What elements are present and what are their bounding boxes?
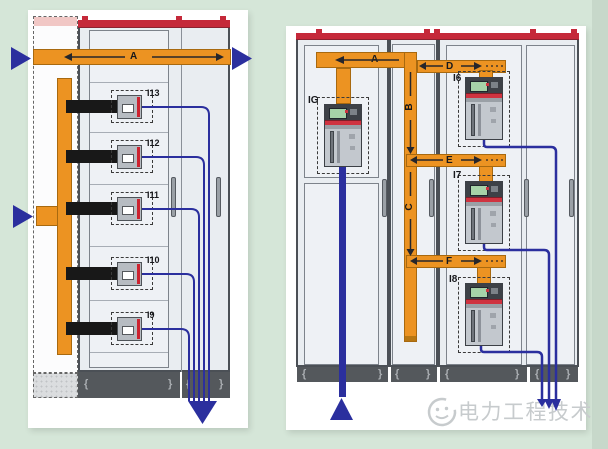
plinth-mark: } (426, 369, 430, 380)
plinth-segment (297, 367, 388, 382)
cabinet-top-strip (438, 33, 579, 40)
acb-feeder-i8 (465, 283, 503, 346)
incoming-stub-left (36, 206, 58, 226)
plinth-segment (78, 372, 180, 398)
compartment-line (90, 132, 168, 133)
switchgear-busbar-diagram: A I13 I12 I11 I10 I9 { } { } (0, 0, 608, 449)
breaker-indicator (486, 83, 489, 86)
left-cabinet-divider (181, 28, 182, 372)
acb-feeder-i7 (465, 181, 503, 244)
watermark-logo (424, 394, 460, 430)
breaker-part (349, 134, 355, 139)
breaker-button (491, 186, 498, 192)
watermark-text: 电力工程技术 (458, 401, 593, 425)
breaker-rail (471, 104, 475, 136)
breaker-part (490, 107, 496, 112)
breaker-handle (122, 271, 134, 280)
breaker-part (350, 146, 355, 150)
breaker-button (491, 82, 498, 88)
door-handle (524, 179, 529, 217)
busbar-a-right (316, 52, 417, 68)
breaker-display-panel (466, 284, 502, 299)
lifting-lug (571, 29, 577, 33)
breaker-part (491, 119, 496, 123)
breaker-indicator (486, 289, 489, 292)
breaker-body (466, 206, 502, 243)
right-edge-band (592, 0, 608, 449)
compartment-line (90, 300, 168, 301)
riser-b-label: B (404, 100, 416, 114)
extension-plinth (33, 373, 78, 398)
cabinet-top-strip (389, 33, 438, 40)
breaker-button (491, 288, 498, 294)
incomer-door-lower (304, 183, 379, 365)
compartment-line (90, 352, 168, 353)
plinth-mark: { (535, 369, 539, 380)
breaker-rail (471, 208, 475, 240)
compartment-line (90, 82, 168, 83)
plinth-mark: { (186, 379, 190, 390)
breaker-part (490, 211, 496, 216)
riser-busbar-end (405, 336, 416, 341)
breaker-stripe (137, 264, 140, 284)
lifting-lug (434, 29, 440, 33)
breaker-body (325, 129, 361, 166)
feeder-label: I12 (147, 138, 160, 149)
plinth-mark: } (219, 379, 223, 390)
breaker-part (490, 313, 496, 318)
breaker-rail (337, 131, 340, 163)
mccb-breaker (117, 317, 142, 341)
acb-feeder-i6 (465, 77, 503, 140)
mccb-breaker (117, 197, 142, 221)
breaker-rail (478, 104, 481, 136)
breaker-display-panel (466, 182, 502, 197)
feeder-label: I11 (147, 190, 159, 201)
breaker-rail (330, 131, 334, 163)
plinth-segment (440, 367, 527, 382)
breaker-handle (122, 154, 134, 163)
extension-top-strip (34, 17, 77, 26)
incomer-label: IG (308, 95, 319, 106)
mccb-breaker (117, 262, 142, 286)
door-handle (216, 177, 221, 217)
branch-d-label: D (446, 61, 453, 73)
acb-incomer (324, 104, 362, 167)
breaker-body (466, 308, 502, 345)
breaker-stripe (137, 199, 140, 219)
riser-c-label: C (404, 200, 416, 214)
feeder-label: I10 (147, 255, 160, 266)
lifting-lug (530, 29, 536, 33)
busbar-a-right-label: A (371, 54, 378, 66)
busbar-a-left-label: A (130, 51, 137, 63)
plinth-mark: } (566, 369, 570, 380)
branch-e-label: E (446, 155, 453, 167)
branch-busbar-f (406, 255, 506, 268)
door-handle (171, 177, 176, 217)
breaker-stripe (137, 97, 140, 117)
plinth-mark: { (84, 379, 88, 390)
lifting-lug (220, 16, 226, 20)
door-handle (569, 179, 574, 217)
door-handle (429, 179, 434, 217)
riser-busbar (404, 52, 417, 342)
mccb-breaker (117, 145, 142, 169)
breaker-indicator (486, 187, 489, 190)
lifting-lug (176, 16, 182, 20)
breaker-stripe (137, 319, 140, 339)
breaker-part (491, 223, 496, 227)
breaker-rail (478, 208, 481, 240)
breaker-handle (122, 104, 134, 113)
mccb-breaker (117, 95, 142, 119)
cabinet-top-strip (296, 33, 389, 40)
breaker-handle (122, 206, 134, 215)
plinth-mark: } (515, 369, 519, 380)
vertical-riser-left (57, 78, 72, 355)
lifting-lug (424, 29, 430, 33)
feeder-label: I6 (453, 73, 461, 84)
breaker-rail (471, 310, 475, 342)
feeder-door-right (526, 45, 575, 365)
feeder-label: I13 (147, 88, 160, 99)
breaker-display-panel (466, 78, 502, 93)
plinth-mark: { (395, 369, 399, 380)
breaker-body (466, 102, 502, 139)
plinth-mark: { (302, 369, 306, 380)
lifting-lug (316, 29, 322, 33)
left-cabinet-top-strip (78, 20, 230, 28)
lifting-lug (82, 16, 88, 20)
breaker-indicator (345, 110, 348, 113)
plinth-mark: } (168, 379, 172, 390)
door-handle (382, 179, 387, 217)
breaker-handle (122, 326, 134, 335)
feeder-label: I8 (449, 274, 457, 285)
branch-f-label: F (446, 256, 452, 268)
compartment-line (90, 246, 168, 247)
breaker-display-panel (325, 105, 361, 120)
breaker-button (350, 109, 357, 115)
feeder-label: I7 (453, 170, 461, 181)
breaker-rail (478, 310, 481, 342)
breaker-part (491, 325, 496, 329)
breaker-stripe (137, 147, 140, 167)
plinth-mark: } (378, 369, 382, 380)
plinth-mark: { (445, 369, 449, 380)
feeder-label: I9 (147, 310, 155, 321)
compartment-line (90, 184, 168, 185)
